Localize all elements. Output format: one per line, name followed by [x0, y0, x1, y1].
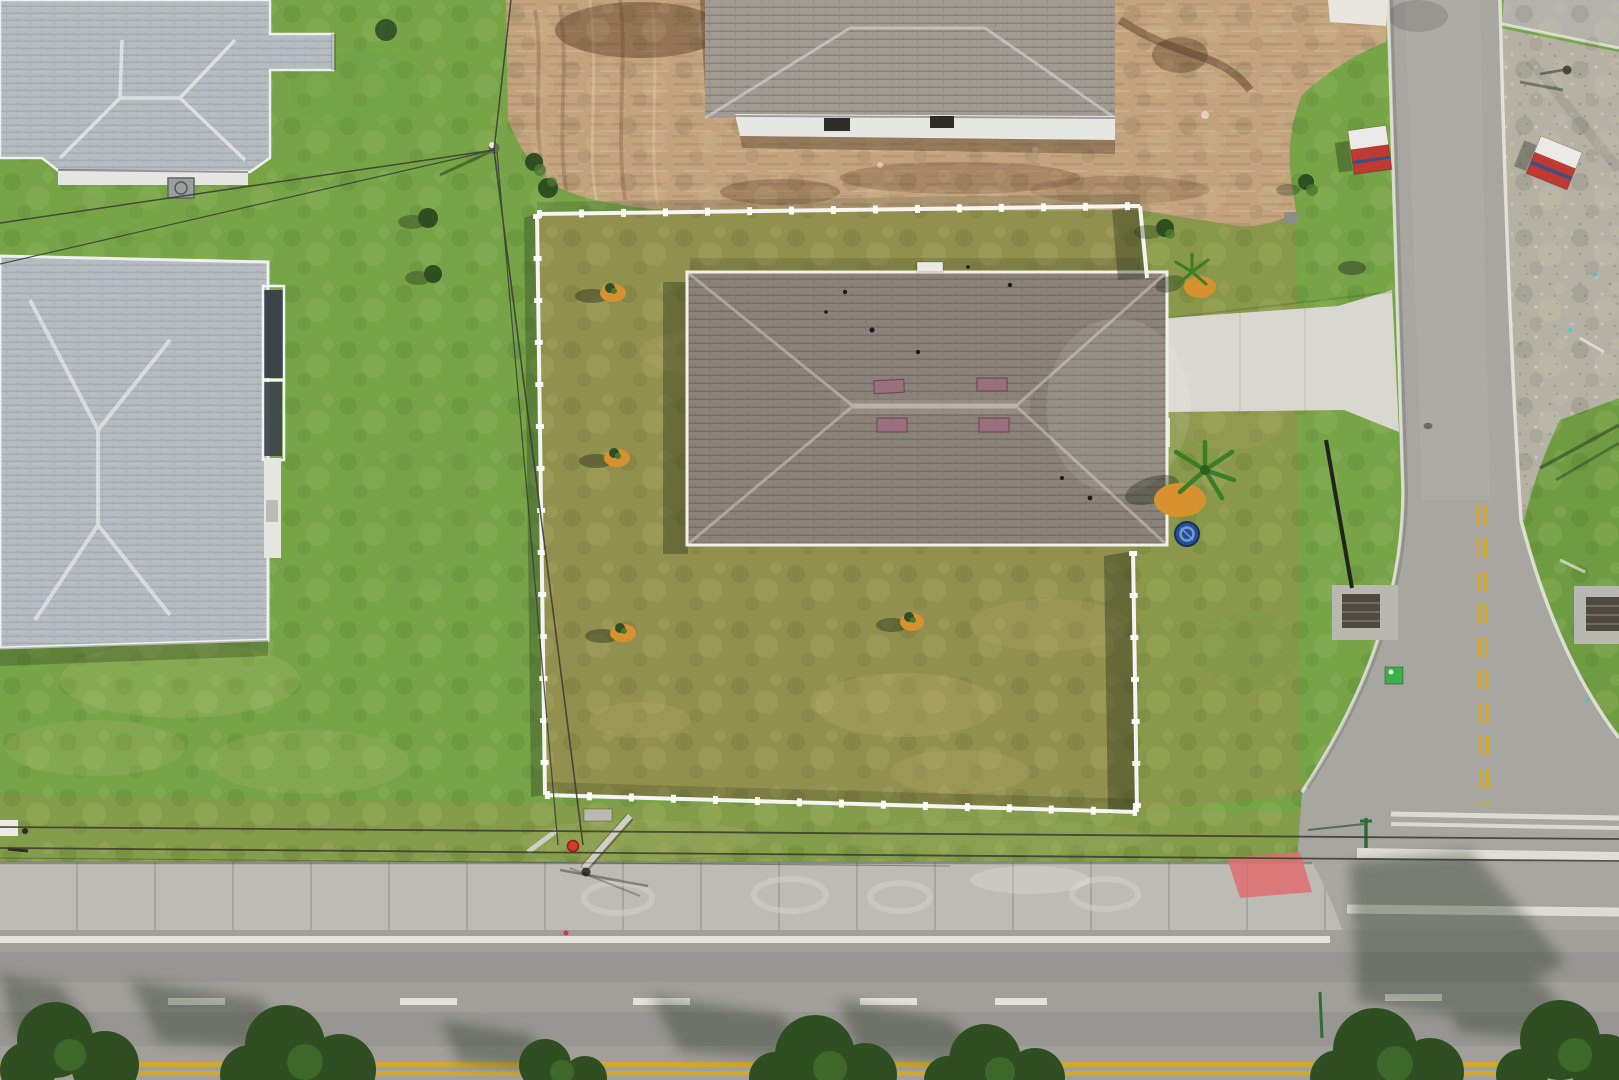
aerial-photo-svg	[0, 0, 1619, 1080]
blue-kiddie-pool	[1175, 522, 1199, 546]
fire-hydrant	[568, 841, 579, 852]
green-utility-box	[1385, 667, 1403, 684]
road-edge-line	[0, 936, 1330, 943]
meter-box	[584, 809, 612, 821]
screened-lanai	[263, 286, 284, 460]
concrete-marker-pad	[1284, 212, 1298, 223]
storm-drain-right	[1574, 586, 1619, 644]
house-left	[0, 256, 284, 666]
central-house	[663, 258, 1190, 554]
window-opening	[930, 116, 954, 128]
storm-drain-left	[1332, 585, 1398, 640]
window-opening	[824, 118, 850, 131]
concrete-form	[1328, 0, 1388, 26]
ridge-vent-cap	[917, 262, 943, 272]
road-edge-debris	[1338, 261, 1366, 275]
aerial-photo-scene	[0, 0, 1619, 1080]
flare-guy-post	[1320, 992, 1322, 1038]
